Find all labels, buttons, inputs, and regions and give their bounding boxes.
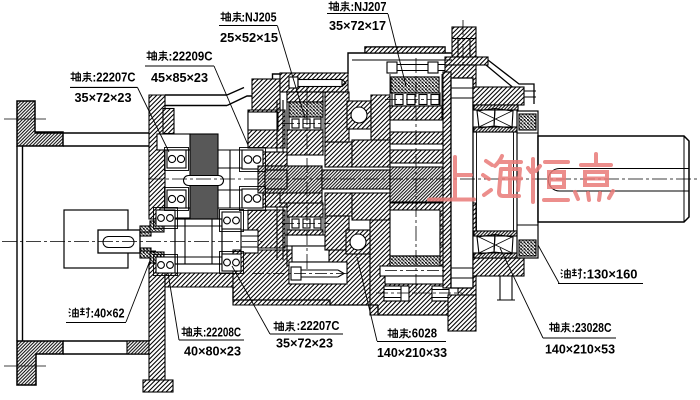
svg-text:35×72×23: 35×72×23 — [276, 336, 333, 351]
svg-text::NJ205: :NJ205 — [242, 10, 277, 25]
svg-text::22209C: :22209C — [169, 48, 214, 63]
svg-text::22207C: :22207C — [297, 318, 341, 333]
svg-text::NJ207: :NJ207 — [351, 0, 387, 14]
svg-text::6028: :6028 — [408, 325, 437, 340]
svg-text:40×80×23: 40×80×23 — [184, 344, 241, 359]
svg-text:25×52×15: 25×52×15 — [220, 30, 278, 45]
svg-text::22207C: :22207C — [93, 69, 137, 84]
svg-text:140×210×33: 140×210×33 — [377, 345, 447, 360]
svg-text:45×85×23: 45×85×23 — [151, 70, 208, 85]
svg-text:35×72×23: 35×72×23 — [75, 90, 132, 105]
svg-text:35×72×17: 35×72×17 — [329, 18, 386, 33]
svg-text::130×160: :130×160 — [583, 266, 638, 281]
svg-text:140×210×53: 140×210×53 — [545, 342, 615, 357]
svg-text::22208C: :22208C — [203, 324, 241, 339]
svg-text::40×62: :40×62 — [91, 305, 125, 320]
svg-text::23028C: :23028C — [572, 320, 612, 335]
